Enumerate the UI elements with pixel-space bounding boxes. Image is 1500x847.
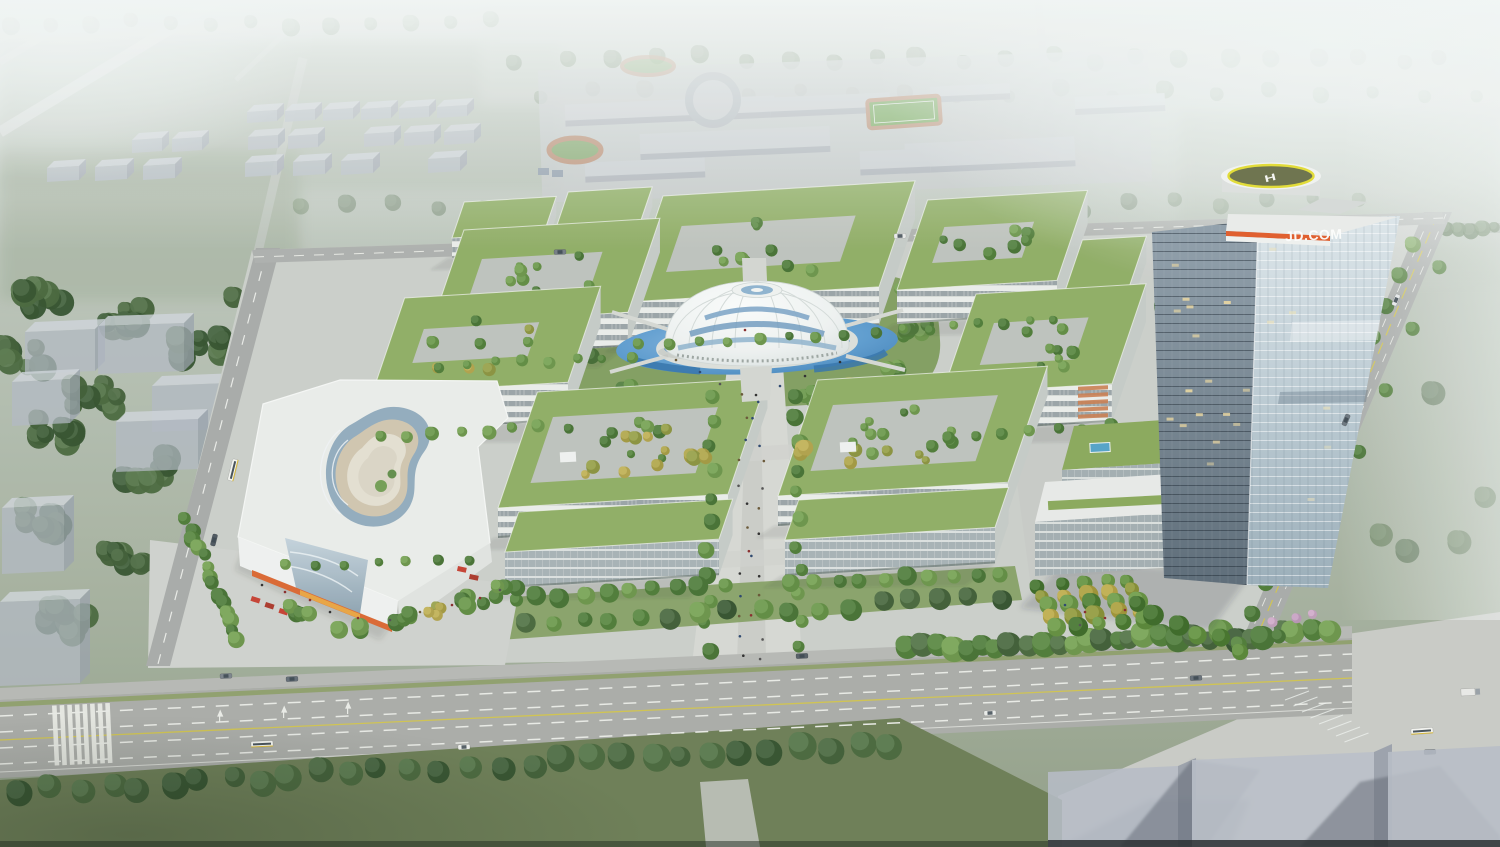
pedestrian: [675, 359, 678, 362]
pedestrian: [741, 393, 744, 396]
pedestrian: [839, 361, 842, 364]
pedestrian: [389, 619, 392, 622]
pedestrian: [699, 371, 702, 374]
tree: [1047, 618, 1066, 637]
pedestrian: [779, 385, 782, 388]
pedestrian: [261, 584, 264, 587]
pedestrian: [739, 572, 742, 575]
tree: [1129, 596, 1145, 612]
car: [796, 653, 808, 659]
tree: [1143, 605, 1164, 626]
pedestrian: [1084, 611, 1087, 614]
pedestrian: [750, 614, 753, 617]
pedestrian: [744, 439, 747, 442]
pedestrian: [758, 594, 761, 597]
pedestrian: [759, 658, 762, 661]
tree: [1188, 626, 1206, 644]
pedestrian: [763, 460, 766, 463]
pedestrian: [1104, 617, 1107, 620]
pedestrian: [357, 617, 360, 620]
pedestrian: [738, 615, 741, 618]
pedestrian: [329, 611, 332, 614]
pedestrian: [758, 575, 761, 578]
tree: [1169, 615, 1189, 635]
tree: [1232, 644, 1248, 660]
pedestrian: [284, 591, 287, 594]
massing-box: [1388, 746, 1500, 847]
pedestrian: [1079, 624, 1082, 627]
tree: [1115, 614, 1131, 630]
pedestrian: [737, 484, 740, 487]
car: [894, 233, 906, 238]
pedestrian: [758, 507, 761, 510]
pedestrian: [719, 383, 722, 386]
pedestrian: [750, 555, 753, 558]
pedestrian: [758, 445, 761, 448]
car: [984, 710, 996, 716]
pedestrian: [739, 595, 742, 598]
pedestrian: [804, 375, 807, 378]
pedestrian: [757, 401, 760, 404]
pedestrian: [746, 417, 749, 420]
tower-west-face-grid: [1152, 220, 1258, 585]
pedestrian: [757, 532, 760, 535]
pedestrian: [419, 611, 422, 614]
campus-scene: H JD.COM: [0, 0, 1500, 847]
pedestrian: [1124, 609, 1127, 612]
tree: [1092, 617, 1105, 630]
pedestrian: [479, 597, 482, 600]
pedestrian: [746, 502, 749, 505]
pedestrian: [761, 638, 764, 641]
pedestrian: [739, 635, 742, 638]
tree: [1068, 617, 1088, 637]
facade-reflection: [1290, 320, 1380, 342]
jd-logo-text: JD.COM: [1285, 226, 1343, 244]
car: [554, 249, 566, 254]
pedestrian: [742, 654, 745, 657]
facade-shadow-band: [1278, 390, 1368, 404]
pedestrian: [761, 487, 764, 490]
foreground-dark-strip: [1048, 840, 1500, 847]
pedestrian: [451, 604, 454, 607]
pedestrian: [755, 394, 758, 397]
car: [220, 673, 232, 679]
bus: [1411, 727, 1433, 735]
tree: [1056, 577, 1069, 590]
pedestrian: [309, 599, 312, 602]
car: [1190, 675, 1202, 681]
pedestrian: [1064, 604, 1067, 607]
pedestrian: [744, 329, 747, 332]
architectural-rendering: H JD.COM: [0, 0, 1500, 847]
pedestrian: [746, 526, 749, 529]
pedestrian: [738, 459, 741, 462]
tree: [1212, 629, 1230, 647]
pedestrian: [748, 550, 751, 553]
pedestrian: [499, 589, 502, 592]
car: [286, 676, 298, 682]
roof-pool: [1090, 442, 1110, 452]
pedestrian: [751, 417, 754, 420]
